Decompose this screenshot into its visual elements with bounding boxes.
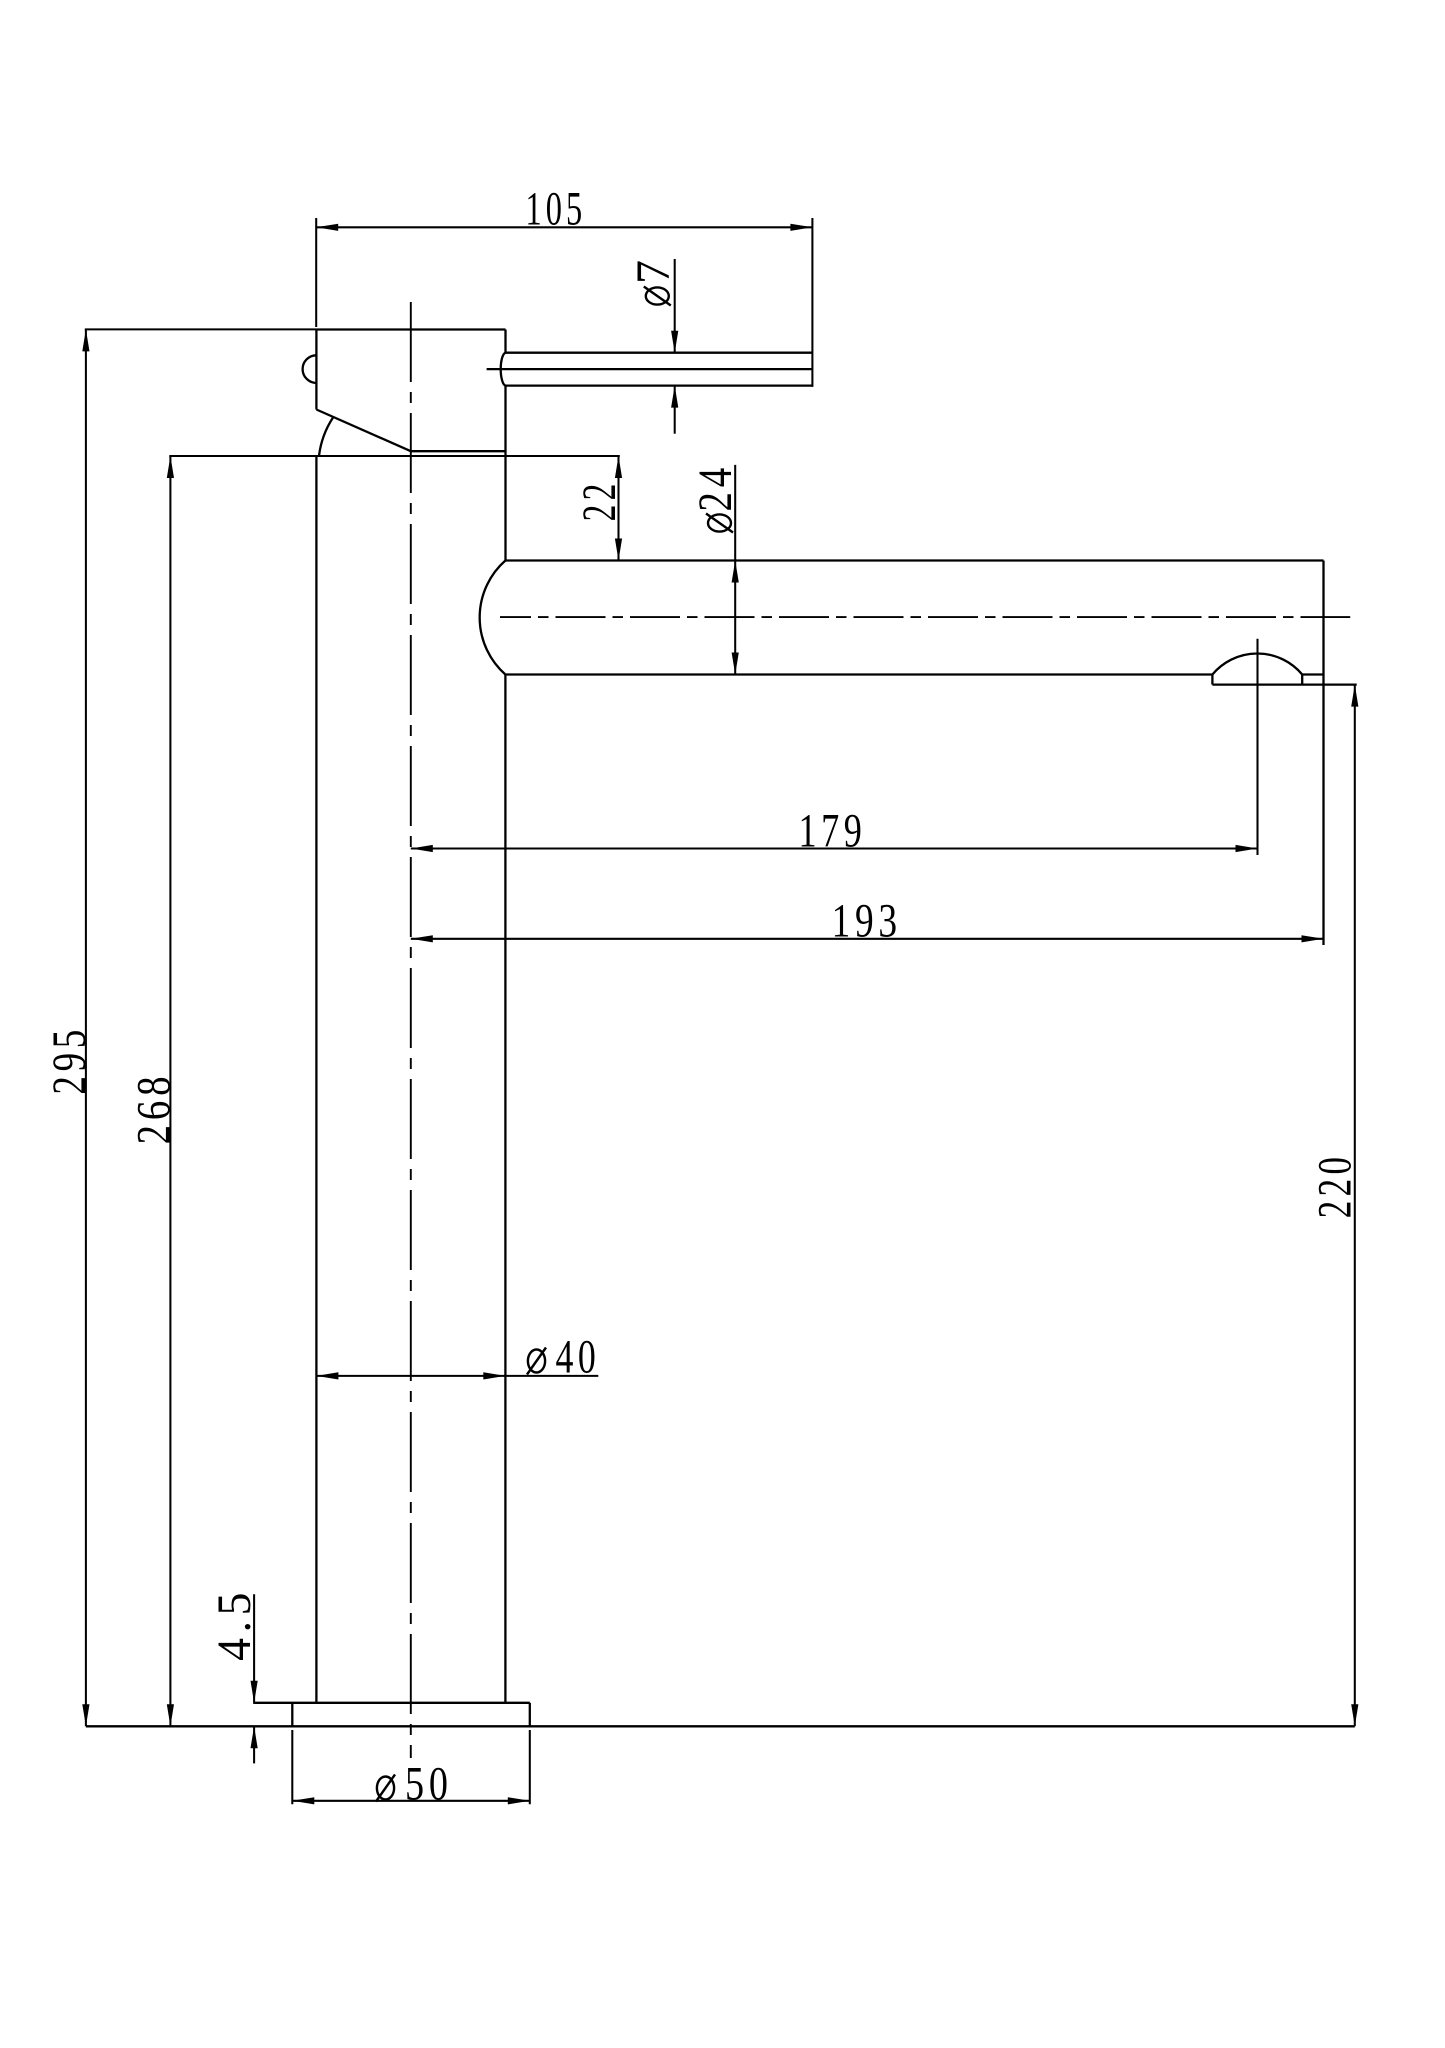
svg-text:4.5: 4.5 xyxy=(208,1587,261,1661)
svg-text:24: 24 xyxy=(689,463,742,512)
svg-text:50: 50 xyxy=(405,1757,453,1810)
svg-text:179: 179 xyxy=(799,805,867,858)
svg-text:268: 268 xyxy=(128,1072,181,1145)
svg-text:7: 7 xyxy=(627,260,680,284)
svg-text:220: 220 xyxy=(1310,1153,1363,1219)
svg-text:40: 40 xyxy=(556,1331,601,1384)
svg-text:193: 193 xyxy=(832,895,902,947)
svg-text:295: 295 xyxy=(43,1025,96,1095)
svg-text:105: 105 xyxy=(526,182,587,235)
svg-text:22: 22 xyxy=(572,479,625,521)
